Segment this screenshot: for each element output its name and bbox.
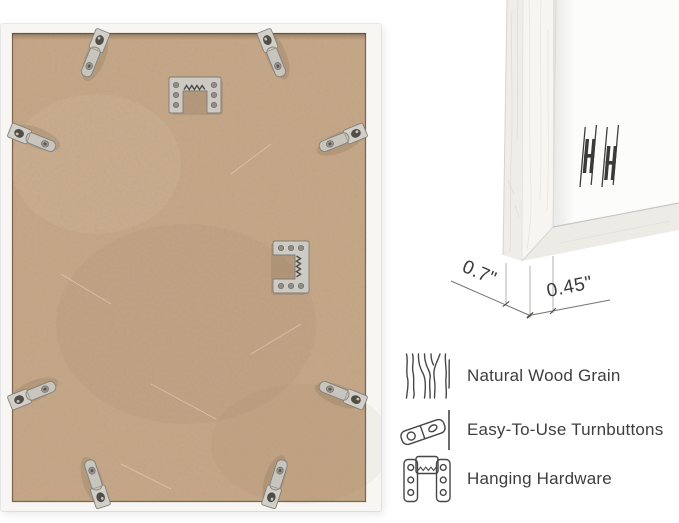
product-infographic: 0.7" 0.45" Natural Wood Grain — [0, 0, 679, 523]
frame-back-art — [1, 24, 381, 511]
features-list: Natural Wood Grain Easy-To-Use Turnbutto… — [398, 348, 679, 516]
hanging-hardware-icon — [398, 455, 456, 503]
feature-hanging-hardware: Hanging Hardware — [398, 453, 679, 505]
dimension-annotation: 0.7" 0.45" — [451, 256, 610, 318]
turnbutton-icon — [398, 408, 456, 452]
sawtooth-hanger-icon — [271, 241, 309, 295]
feature-wood-grain: Natural Wood Grain — [398, 350, 679, 402]
depth-measurement: 0.7" — [459, 256, 500, 289]
wood-grain-icon — [398, 353, 456, 399]
moulding-front-face — [522, 0, 556, 261]
width-measurement: 0.45" — [545, 272, 594, 301]
frame-corner-photo: 0.7" 0.45" — [440, 0, 679, 330]
feature-label: Hanging Hardware — [467, 469, 612, 489]
feature-turnbuttons: Easy-To-Use Turnbuttons — [398, 404, 679, 456]
feature-label: Easy-To-Use Turnbuttons — [467, 420, 663, 440]
frame-back-photo — [1, 24, 381, 511]
feature-label: Natural Wood Grain — [467, 366, 621, 386]
sawtooth-hanger-icon — [169, 77, 223, 115]
